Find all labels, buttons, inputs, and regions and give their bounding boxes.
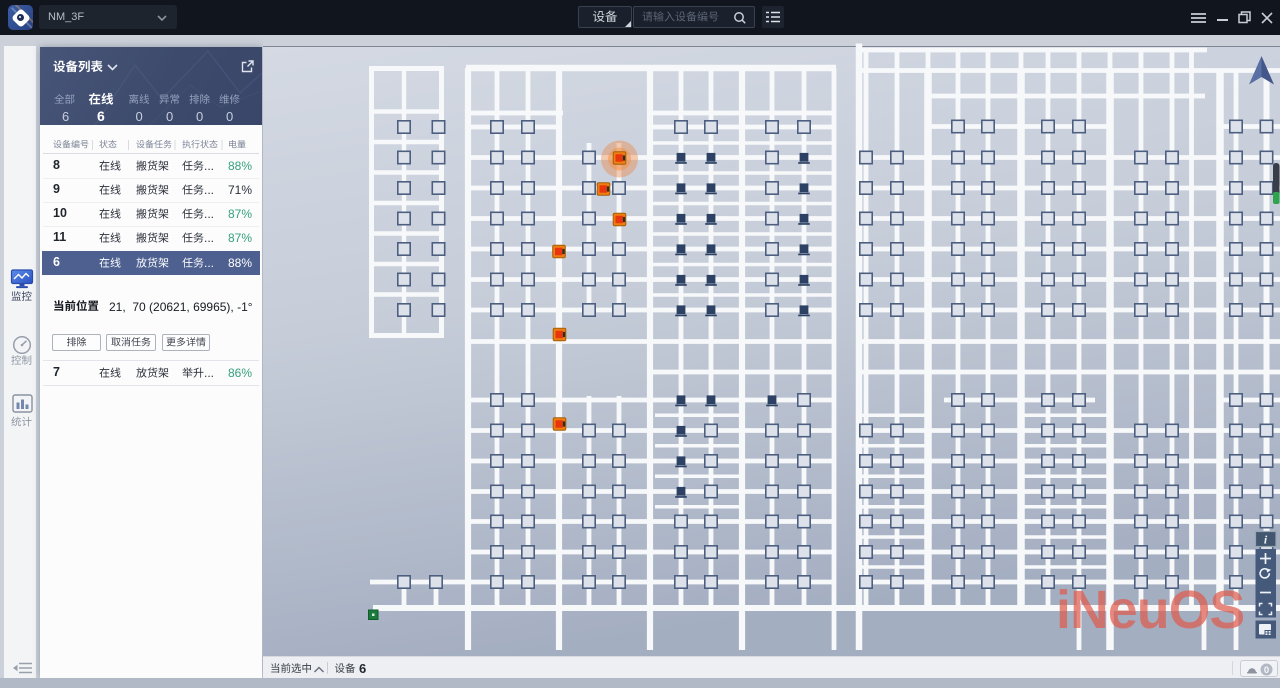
svg-text:iNeuOS: iNeuOS (1056, 581, 1244, 640)
svg-text:0: 0 (1264, 665, 1269, 676)
